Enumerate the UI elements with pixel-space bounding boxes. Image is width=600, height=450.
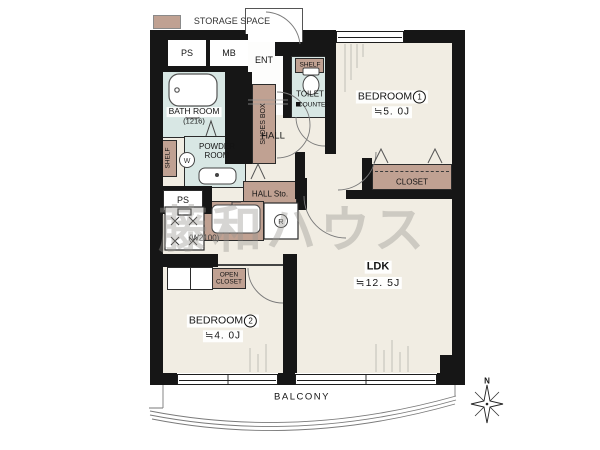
open-closet-label: OPEN CLOSET — [216, 272, 242, 287]
bedroom1-label: BEDROOM1 — [356, 91, 428, 104]
shelf-left-label: SHELF — [164, 148, 171, 169]
bath-folding-door — [206, 121, 216, 136]
bedroom1-door-arc — [338, 152, 376, 190]
bedroom2-label: BEDROOM2 — [187, 315, 259, 328]
toilet-shelf-label: SHELF — [300, 61, 321, 68]
toilet-label: TOILET — [296, 89, 324, 98]
watermark: 藤和ハウス — [158, 190, 458, 262]
bedroom1-size: ≒5. 0J — [372, 106, 412, 118]
bedroom1-name: BEDROOM — [358, 91, 412, 103]
toilet-door-arc — [296, 117, 325, 146]
bedroom2-size: ≒4. 0J — [203, 330, 243, 342]
balcony-label: BALCONY — [274, 393, 330, 404]
open-closet-line2: CLOSET — [216, 279, 242, 286]
powder-room-label: POWDER ROOM — [191, 142, 243, 160]
entrance-door-arc — [266, 12, 300, 44]
compass-north-label: N — [484, 376, 490, 385]
toilet-counter-label: COUNTER — [298, 101, 330, 108]
bedroom2-door-arc — [248, 268, 283, 303]
floor-plan: STORAGE SPACE PS MB BATH ROOM (1216) SHO… — [0, 0, 600, 450]
bedroom2-number: 2 — [244, 315, 257, 328]
legend-storage-swatch — [153, 15, 181, 29]
ps-top-label: PS — [181, 48, 193, 58]
closet-hanger-line — [375, 171, 449, 172]
washbasin-icon — [199, 168, 236, 184]
entrance-label: ENT — [255, 55, 273, 65]
folding-door-marks — [251, 149, 442, 179]
compass-icon — [471, 385, 503, 423]
mb-label: MB — [222, 48, 236, 58]
bedroom1-number: 1 — [413, 91, 426, 104]
washer-letter: W — [184, 158, 191, 165]
bedroom2-name: BEDROOM — [189, 315, 243, 327]
ldk-label: LDK — [365, 261, 392, 274]
bath-size-label: (1216) — [183, 118, 205, 127]
bath-room-label: BATH ROOM — [167, 107, 222, 117]
open-closet-line1: OPEN — [220, 272, 238, 279]
hall-label: HALL — [261, 132, 285, 143]
ldk-size: ≒12. 5J — [354, 277, 402, 289]
legend-storage-label: STORAGE SPACE — [194, 16, 270, 26]
window-ticks — [228, 374, 366, 385]
bedroom1-closet-label: CLOSET — [396, 177, 428, 186]
